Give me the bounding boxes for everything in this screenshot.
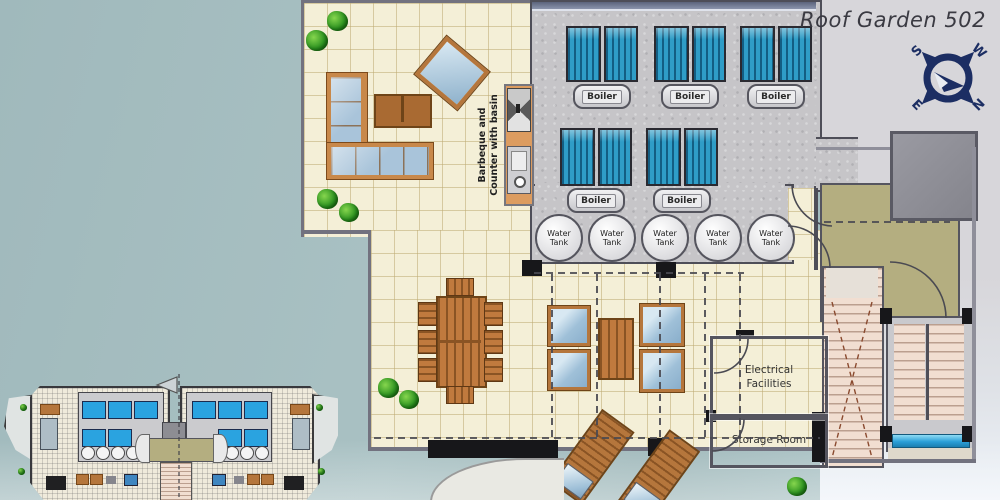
- mini-water-tank: [240, 446, 254, 460]
- basin-drain: [514, 176, 526, 188]
- mini-solar-panel: [192, 401, 216, 419]
- key-plan-core-stairs: [160, 462, 192, 500]
- sofa-coffee-table: [374, 94, 432, 128]
- bush: [306, 30, 328, 51]
- armchair: [548, 350, 590, 390]
- storage-room: Storage Room: [710, 414, 828, 468]
- mini-desk: [290, 404, 310, 415]
- mini-desk: [40, 404, 60, 415]
- storage-room-label: Storage Room: [719, 434, 819, 448]
- solar-panel: [740, 26, 775, 82]
- key-plan-core-wing: [213, 434, 228, 463]
- mini-solar-panel: [108, 429, 132, 447]
- solar-panel-pair: Boiler: [560, 128, 632, 186]
- mini-bush: [318, 468, 325, 475]
- solar-panel-pair: Boiler: [646, 128, 718, 186]
- bush: [317, 189, 338, 209]
- dining-table-divider: [438, 340, 481, 343]
- armchair: [640, 350, 684, 392]
- solar-panel: [654, 26, 689, 82]
- electrical-facilities-room: Electrical Facilities: [710, 336, 828, 420]
- wall-segment: [428, 440, 558, 458]
- mini-solar-panel: [134, 401, 158, 419]
- water-tank: Water Tank: [694, 214, 742, 262]
- mini-bush: [316, 404, 323, 411]
- water-tank-row: Water Tank Water Tank Water Tank Water T…: [535, 214, 795, 262]
- parapet-band: [532, 2, 816, 9]
- solar-panel: [646, 128, 681, 186]
- key-plan-miniature: [4, 376, 338, 500]
- mini-water-tank: [111, 446, 125, 460]
- boiler-label: Boiler: [662, 194, 702, 208]
- mini-dresser: [247, 474, 260, 485]
- solar-panel: [692, 26, 727, 82]
- water-tank: Water Tank: [747, 214, 795, 262]
- solar-panel: [778, 26, 813, 82]
- mini-solar-panel: [244, 401, 268, 419]
- pergola-post: [656, 262, 676, 278]
- mini-solar-panel: [244, 429, 268, 447]
- plan-right-wall: [972, 147, 976, 461]
- parapet-highlight: [532, 9, 816, 11]
- bush: [399, 390, 419, 409]
- mini-table-dark: [284, 476, 304, 490]
- table-divider: [401, 96, 404, 122]
- compass-ring: [927, 57, 969, 99]
- sofa-cushions: [331, 147, 429, 175]
- key-plan-core-band: [148, 438, 214, 462]
- mini-dresser: [261, 474, 274, 485]
- solar-panel: [684, 128, 719, 186]
- mini-bed: [212, 474, 226, 486]
- dining-chair: [446, 278, 474, 296]
- mini-solar-panel: [82, 429, 106, 447]
- compass-south: S: [909, 43, 926, 60]
- bush: [339, 203, 359, 222]
- basin-bowl: [511, 151, 527, 171]
- solar-panel: [560, 128, 595, 186]
- mini-bed: [124, 474, 138, 486]
- mini-sofa: [40, 418, 58, 450]
- stair-flight-a: [894, 324, 925, 420]
- solar-panel: [604, 26, 639, 82]
- solar-panel: [566, 26, 601, 82]
- boiler-label: Boiler: [670, 90, 710, 104]
- mini-dresser: [76, 474, 89, 485]
- mini-water-tank: [255, 446, 269, 460]
- mini-water-tank: [96, 446, 110, 460]
- dining-chair: [484, 302, 503, 326]
- lounger-pillow: [623, 482, 660, 500]
- compass-rose: S W E N: [900, 34, 996, 122]
- bush: [787, 477, 807, 496]
- mini-fixture: [234, 476, 244, 484]
- electrical-facilities-label: Electrical Facilities: [729, 364, 809, 391]
- mini-bush: [18, 468, 25, 475]
- water-tank: Water Tank: [641, 214, 689, 262]
- compass-east: E: [908, 97, 925, 114]
- dining-chair: [484, 358, 503, 382]
- dining-chair: [446, 386, 474, 404]
- mini-bush: [20, 404, 27, 411]
- water-tank: Water Tank: [535, 214, 583, 262]
- armchair: [640, 304, 684, 346]
- boiler-tank: Boiler: [747, 84, 805, 109]
- stair-post: [880, 308, 892, 324]
- glass-canopy-strip: [892, 434, 970, 448]
- dining-chair: [418, 358, 437, 382]
- pergola-post: [522, 260, 542, 276]
- boiler-label: Boiler: [582, 90, 622, 104]
- mini-solar-panel: [108, 401, 132, 419]
- mini-dresser: [90, 474, 103, 485]
- boiler-tank: Boiler: [567, 188, 625, 213]
- solar-panel-pair: Boiler: [566, 26, 638, 82]
- roof-garden-floor-plan: Boiler Boiler Boiler Boiler Boiler Water…: [0, 0, 1000, 500]
- boiler-label: Boiler: [756, 90, 796, 104]
- dining-table: [436, 296, 487, 388]
- mini-sofa: [292, 418, 310, 450]
- boiler-label: Boiler: [576, 194, 616, 208]
- mini-water-tank: [81, 446, 95, 460]
- dining-chair: [418, 302, 437, 326]
- solar-panel-pair: Boiler: [740, 26, 812, 82]
- grill-center: [516, 104, 520, 113]
- water-tank: Water Tank: [588, 214, 636, 262]
- elevator-shaft: [890, 131, 978, 221]
- concrete-extension: [816, 137, 858, 188]
- barbeque-label: Barbeque and Counter with basin: [477, 85, 505, 205]
- solar-panel: [598, 128, 633, 186]
- dining-chair: [418, 330, 437, 354]
- corner-sofa-horizontal: [326, 142, 434, 180]
- dining-chair: [484, 330, 503, 354]
- mini-solar-panel: [218, 401, 242, 419]
- page-title: Roof Garden 502: [790, 8, 986, 32]
- key-plan-core-wing: [135, 434, 150, 463]
- pergola-coffee-table: [598, 318, 634, 380]
- solar-panel-pair: Boiler: [654, 26, 726, 82]
- terrace-step-wall: [301, 230, 371, 234]
- bush: [327, 11, 348, 31]
- armchair: [548, 306, 590, 346]
- bush: [378, 378, 399, 398]
- boiler-tank: Boiler: [653, 188, 711, 213]
- corridor-wall: [814, 186, 818, 270]
- mini-fixture: [106, 476, 116, 484]
- stairs-left-landing: [826, 268, 878, 298]
- stair-flight-b: [929, 324, 964, 420]
- compass-north: N: [970, 96, 988, 114]
- boiler-tank: Boiler: [573, 84, 631, 109]
- plan-bottom-right-wall: [820, 459, 976, 463]
- boiler-tank: Boiler: [661, 84, 719, 109]
- mini-solar-panel: [82, 401, 106, 419]
- mini-table-dark: [46, 476, 66, 490]
- stair-center-rail: [926, 324, 929, 420]
- stair-post: [880, 426, 892, 442]
